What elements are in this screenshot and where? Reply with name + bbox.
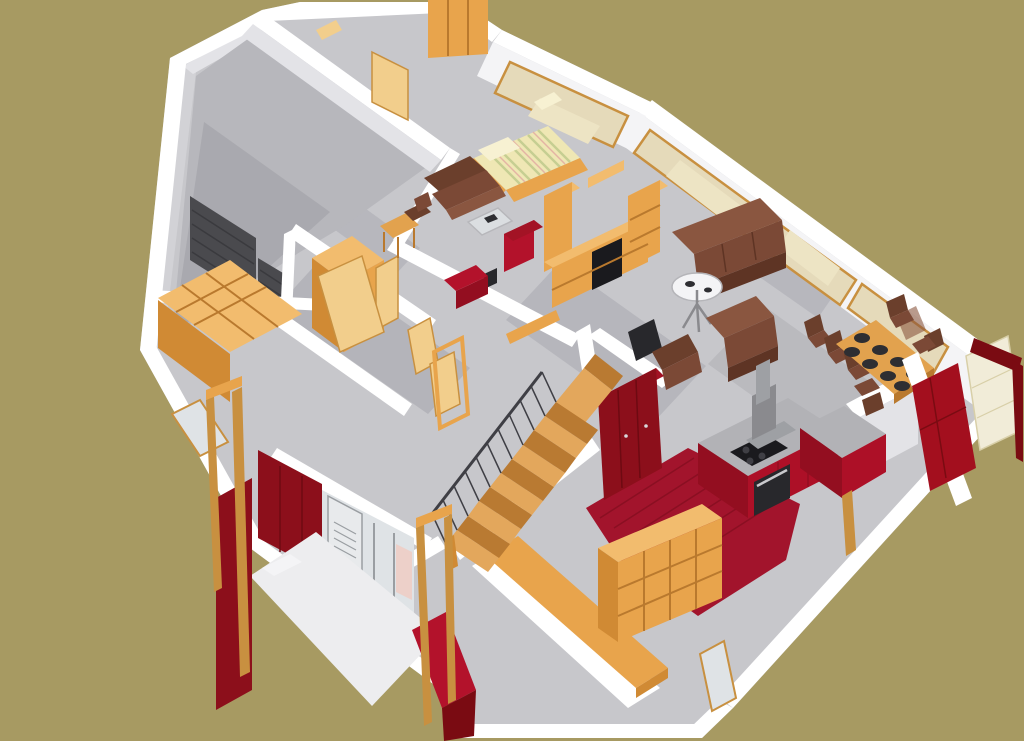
plate	[844, 347, 860, 357]
burner	[747, 458, 754, 465]
plate	[862, 359, 878, 369]
plate	[880, 371, 896, 381]
wardrobe-front	[428, 0, 488, 58]
plate	[872, 345, 888, 355]
burner	[743, 447, 750, 454]
range-hood-chimney	[756, 359, 770, 405]
bookshelf-side	[598, 548, 618, 642]
wardrobe-handle	[644, 424, 648, 428]
item-on-table	[704, 288, 712, 293]
glass-reflection	[396, 544, 412, 600]
plate	[894, 381, 910, 391]
model-viewport[interactable]	[0, 0, 1024, 741]
burner	[759, 453, 766, 460]
wall-band	[446, 724, 702, 738]
plate	[854, 333, 870, 343]
wardrobe-handle	[624, 434, 628, 438]
item-on-table	[685, 281, 695, 287]
